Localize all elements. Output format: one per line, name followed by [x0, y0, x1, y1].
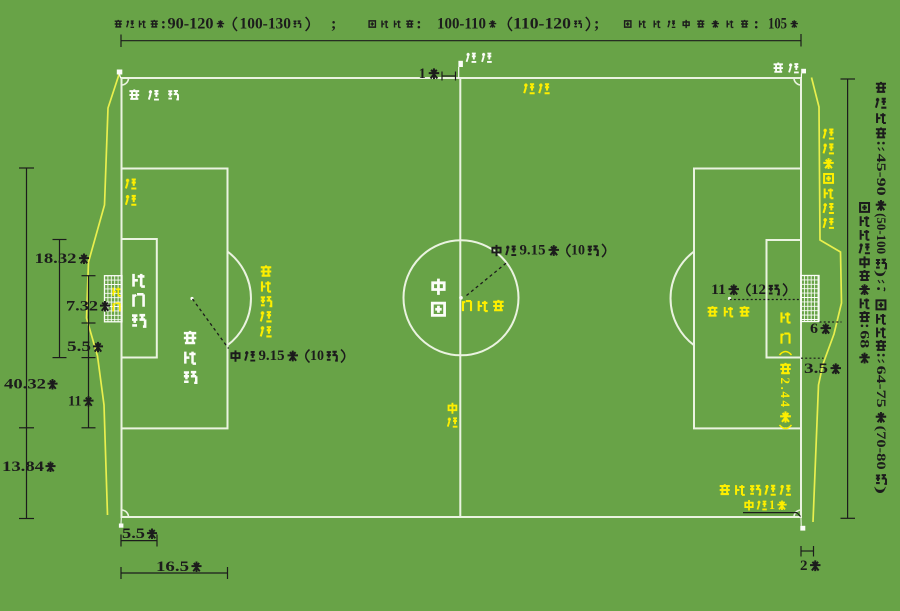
svg-text:5.5: 5.5 [67, 339, 91, 355]
svg-text::: : [754, 16, 759, 33]
svg-text:2: 2 [778, 378, 793, 385]
svg-text:9.15: 9.15 [520, 243, 546, 259]
svg-text:.: . [778, 387, 793, 390]
svg-text:90-120: 90-120 [168, 16, 214, 33]
svg-text:6: 6 [810, 321, 818, 337]
svg-text:(70-80: (70-80 [874, 426, 888, 470]
svg-text:13.84: 13.84 [2, 459, 44, 475]
svg-text:64-75: 64-75 [874, 366, 888, 408]
svg-text:18.32: 18.32 [35, 251, 77, 267]
svg-text:68: 68 [858, 330, 872, 348]
svg-text:40.32: 40.32 [4, 376, 46, 392]
svg-text:1: 1 [769, 498, 775, 512]
svg-text:4: 4 [778, 401, 793, 408]
svg-text:1: 1 [419, 66, 426, 82]
svg-text:16.5: 16.5 [156, 559, 189, 575]
svg-text:110-120: 110-120 [513, 16, 571, 33]
svg-text:): ) [874, 486, 888, 494]
svg-text:;: ; [331, 16, 336, 33]
svg-text:105: 105 [768, 16, 787, 33]
svg-text:7.32: 7.32 [66, 298, 98, 314]
svg-text:12: 12 [751, 282, 766, 298]
svg-text:10: 10 [571, 243, 585, 259]
svg-text:100-130: 100-130 [240, 16, 292, 33]
svg-text:;: ; [594, 16, 599, 33]
svg-text:100-110: 100-110 [437, 16, 486, 33]
svg-text::: : [161, 16, 166, 33]
svg-text:3.5: 3.5 [804, 361, 828, 377]
svg-text::: : [416, 16, 421, 33]
svg-text:): ) [874, 270, 888, 277]
svg-text:10: 10 [310, 348, 324, 364]
svg-text:11: 11 [68, 393, 82, 409]
svg-text:(50-100: (50-100 [874, 213, 888, 254]
svg-text:9.15: 9.15 [259, 348, 285, 364]
svg-text:2: 2 [800, 558, 808, 574]
svg-text:5.5: 5.5 [122, 526, 145, 542]
svg-text:4: 4 [778, 392, 793, 399]
svg-text:45-90: 45-90 [874, 154, 888, 196]
svg-text:11: 11 [711, 282, 726, 298]
